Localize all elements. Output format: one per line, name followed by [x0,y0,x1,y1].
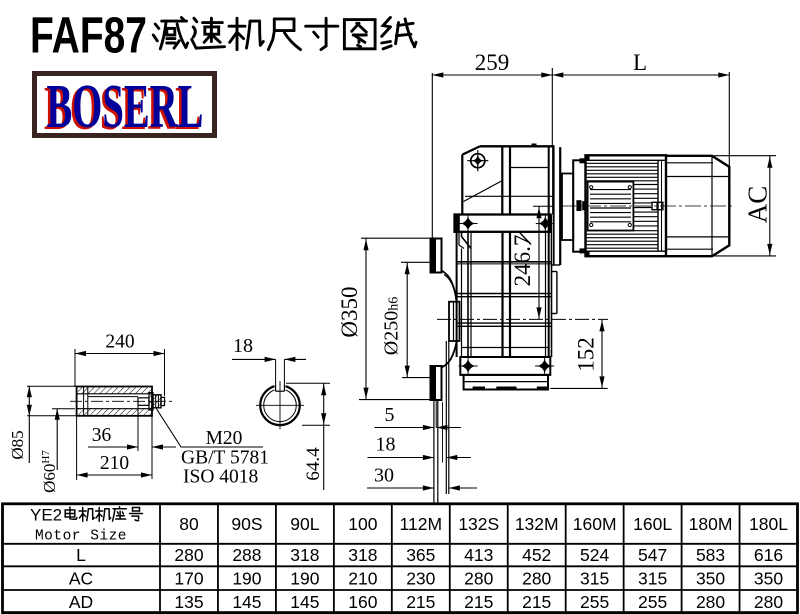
svg-text:160M: 160M [573,514,617,534]
svg-text:280: 280 [522,569,551,589]
svg-text:413: 413 [464,545,493,565]
svg-text:132M: 132M [515,514,559,534]
svg-text:L: L [76,545,86,565]
svg-text:215: 215 [406,592,435,612]
svg-text:YE2: YE2 [30,506,62,525]
svg-text:288: 288 [232,545,261,565]
svg-text:255: 255 [638,592,667,612]
svg-text:90L: 90L [290,514,319,534]
svg-text:GB/T 5781: GB/T 5781 [181,448,269,469]
svg-text:80: 80 [179,514,199,534]
svg-text:5: 5 [385,404,395,426]
svg-text:M20: M20 [206,428,243,449]
svg-text:ISO 4018: ISO 4018 [183,467,258,488]
svg-text:180L: 180L [749,514,788,534]
svg-text:Motor Size: Motor Size [35,529,127,545]
svg-text:246.7: 246.7 [510,235,535,287]
svg-text:90S: 90S [231,514,262,534]
svg-text:190: 190 [290,569,319,589]
svg-text:524: 524 [580,545,609,565]
svg-text:145: 145 [232,592,261,612]
svg-text:240: 240 [105,332,134,353]
svg-text:FAF87: FAF87 [30,7,147,64]
svg-text:112M: 112M [400,514,442,534]
svg-text:145: 145 [290,592,319,612]
svg-text:132S: 132S [458,514,499,534]
svg-text:210: 210 [348,569,377,589]
svg-text:255: 255 [580,592,609,612]
svg-text:170: 170 [174,569,203,589]
svg-text:210: 210 [100,453,129,474]
svg-text:547: 547 [638,545,667,565]
svg-text:Ø85: Ø85 [8,430,27,459]
svg-text:152: 152 [574,337,599,372]
svg-text:318: 318 [348,545,377,565]
svg-text:616: 616 [754,545,783,565]
svg-text:315: 315 [638,569,667,589]
svg-text:259: 259 [475,50,510,75]
svg-text:280: 280 [754,592,783,612]
svg-text:100: 100 [348,514,377,534]
svg-text:30: 30 [374,465,394,487]
svg-text:280: 280 [696,592,725,612]
svg-text:64.4: 64.4 [303,447,324,481]
svg-text:BOSERL: BOSERL [47,73,204,141]
svg-text:215: 215 [522,592,551,612]
svg-text:583: 583 [696,545,725,565]
svg-text:280: 280 [464,569,493,589]
svg-text:365: 365 [406,545,435,565]
svg-text:350: 350 [696,569,725,589]
svg-text:160L: 160L [633,514,672,534]
svg-text:230: 230 [406,569,435,589]
svg-text:180M: 180M [689,514,733,534]
svg-text:318: 318 [290,545,319,565]
svg-text:190: 190 [232,569,261,589]
svg-text:AC: AC [743,186,773,224]
svg-text:L: L [633,50,647,75]
svg-text:AC: AC [69,569,93,589]
svg-text:215: 215 [464,592,493,612]
svg-text:36: 36 [92,425,112,446]
svg-text:AD: AD [69,592,93,612]
svg-text:350: 350 [754,569,783,589]
svg-text:315: 315 [580,569,609,589]
svg-text:135: 135 [174,592,203,612]
svg-text:18: 18 [376,434,396,456]
svg-text:452: 452 [522,545,551,565]
svg-text:160: 160 [348,592,377,612]
svg-text:280: 280 [174,545,203,565]
svg-text:Ø350: Ø350 [337,286,362,337]
svg-text:18: 18 [233,335,253,357]
